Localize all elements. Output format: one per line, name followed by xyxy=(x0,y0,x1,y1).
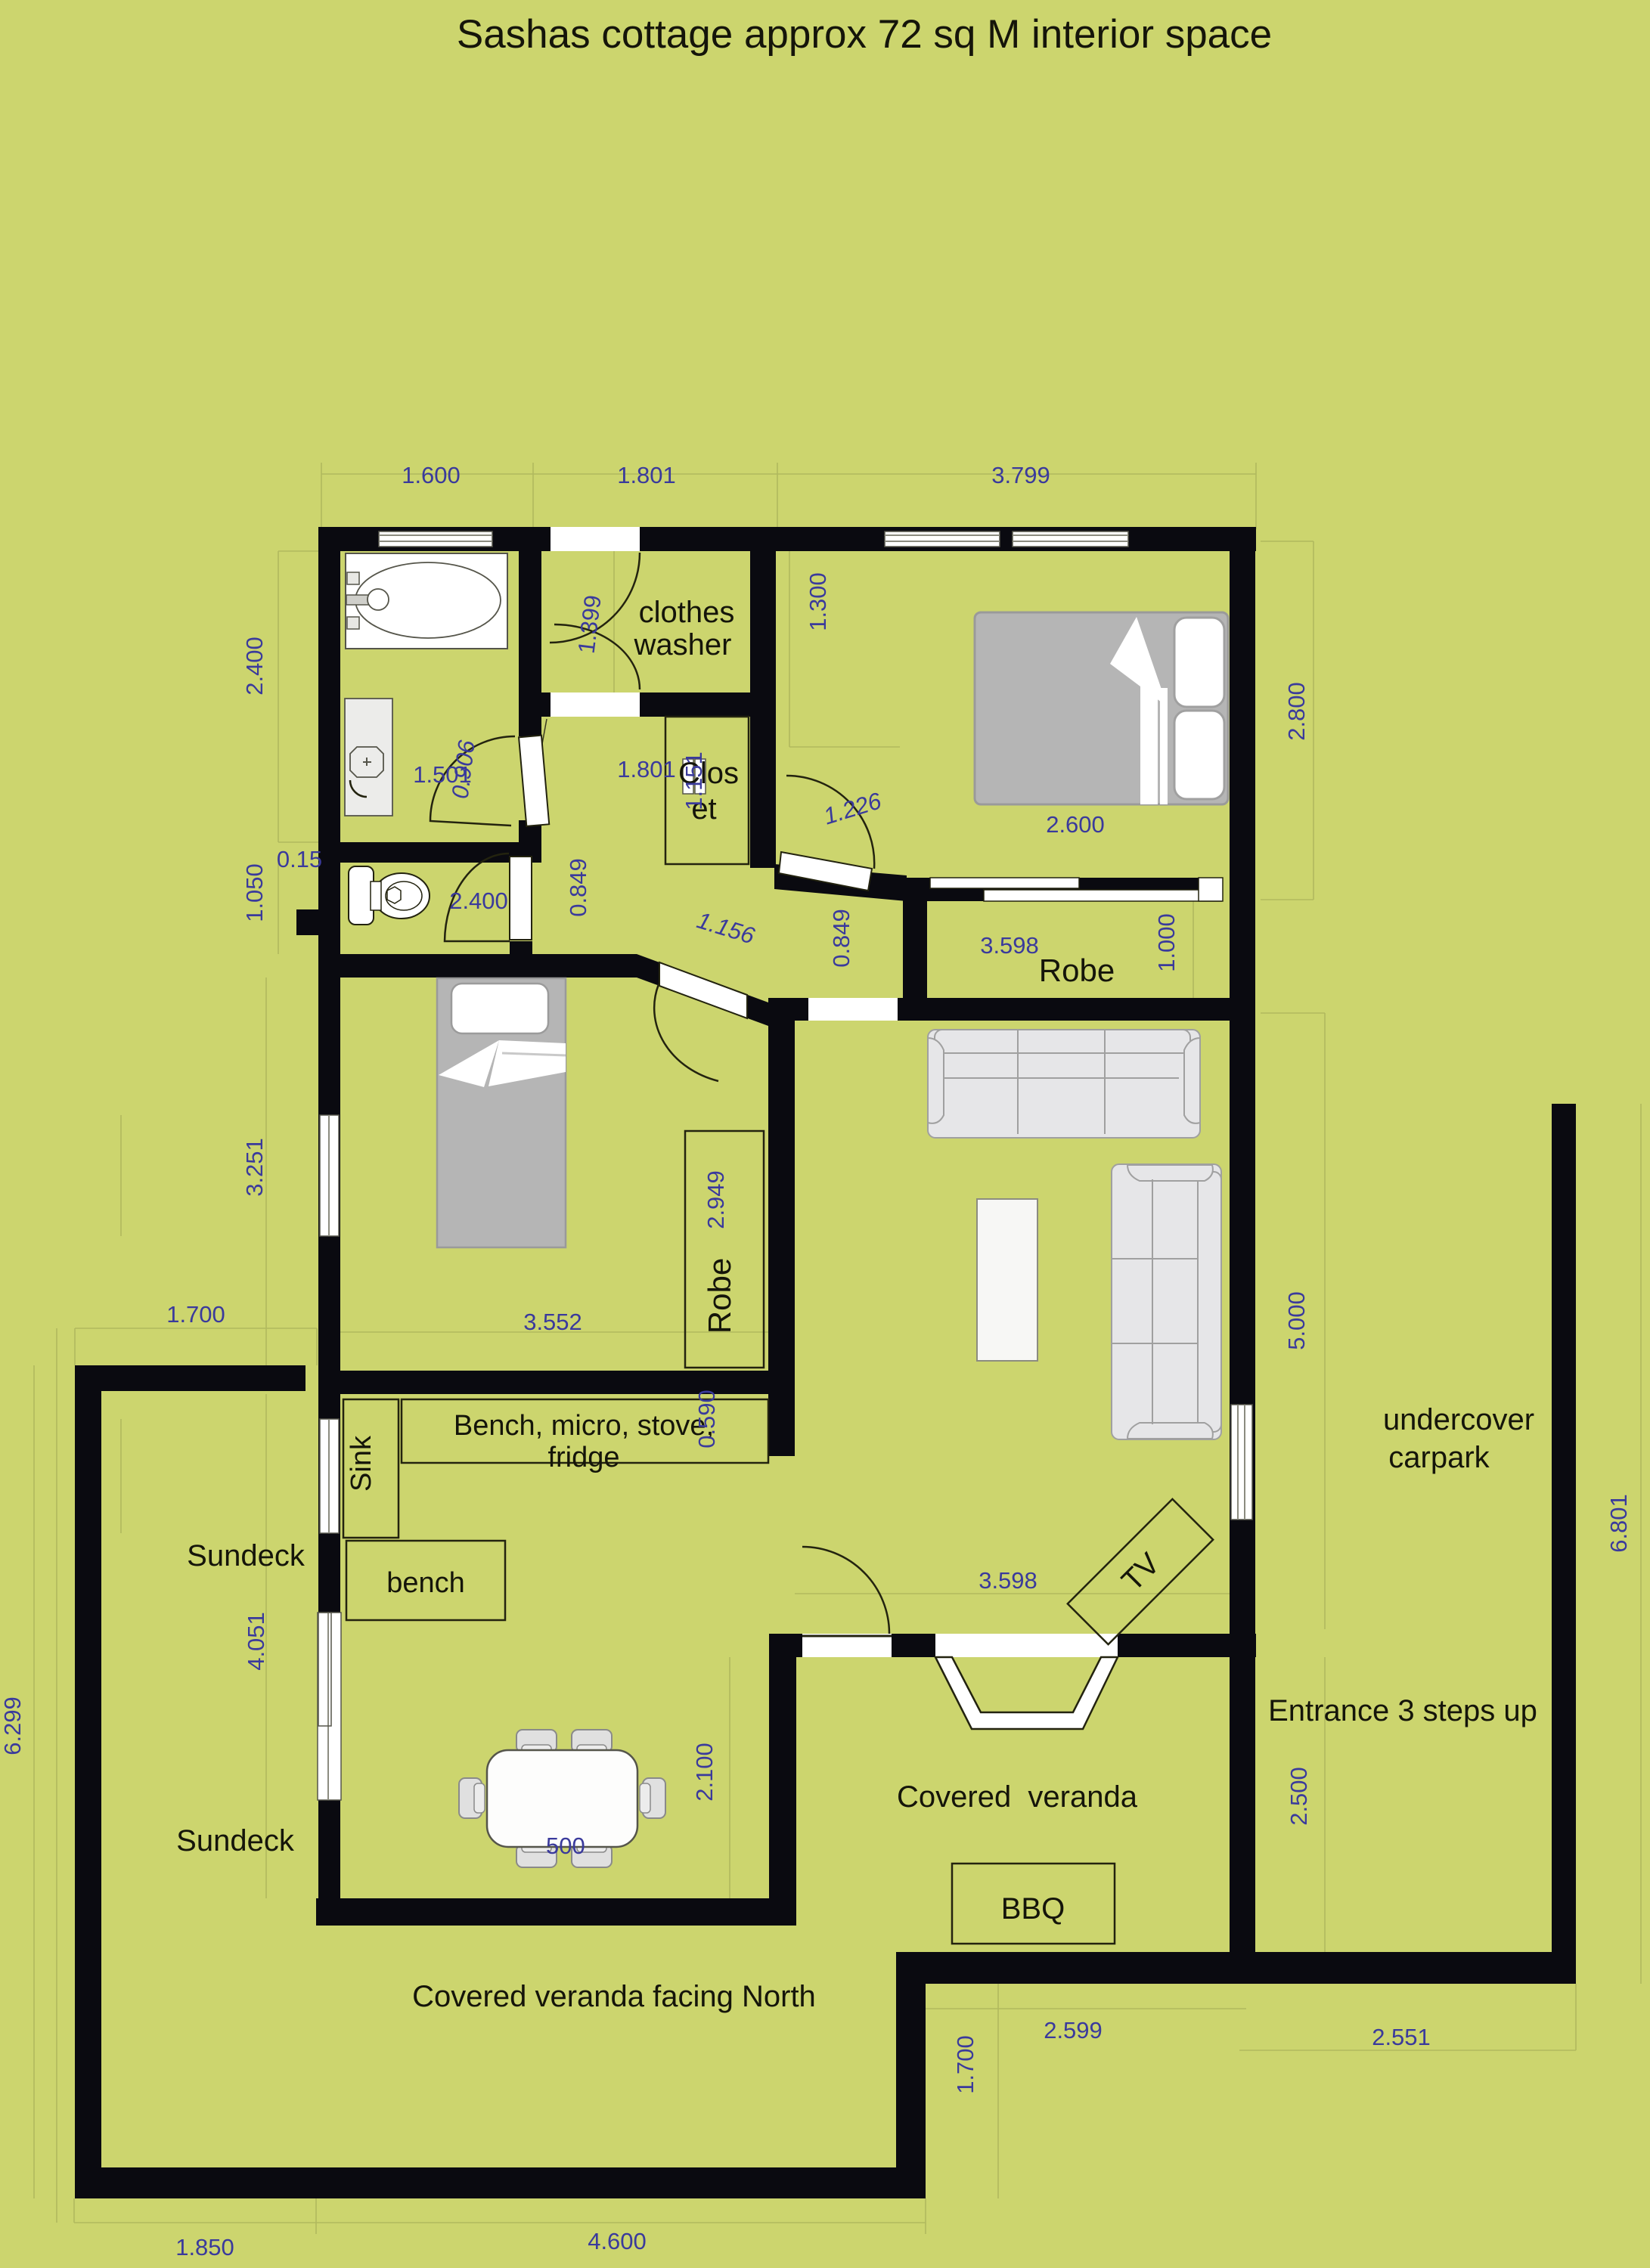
svg-text:3.552: 3.552 xyxy=(523,1309,582,1335)
svg-text:1.801: 1.801 xyxy=(617,462,676,488)
svg-text:2.400: 2.400 xyxy=(241,637,268,696)
svg-text:2.400: 2.400 xyxy=(449,888,508,914)
svg-text:1.700: 1.700 xyxy=(952,2035,979,2094)
svg-text:Entrance 3 steps up: Entrance 3 steps up xyxy=(1268,1694,1537,1727)
svg-text:1.700: 1.700 xyxy=(166,1301,225,1328)
svg-text:1.850: 1.850 xyxy=(175,2234,234,2260)
svg-text:2.599: 2.599 xyxy=(1044,2017,1103,2043)
svg-text:3.598: 3.598 xyxy=(980,932,1039,959)
svg-text:Robe: Robe xyxy=(1039,953,1115,988)
svg-text:2.500: 2.500 xyxy=(1286,1767,1312,1826)
svg-text:1.050: 1.050 xyxy=(241,863,268,922)
svg-text:Sashas cottage approx 72 sq M: Sashas cottage approx 72 sq M interior s… xyxy=(457,12,1272,57)
svg-text:4.600: 4.600 xyxy=(588,2228,647,2254)
svg-text:Covered veranda facing North: Covered veranda facing North xyxy=(412,1980,816,2013)
svg-text:3.799: 3.799 xyxy=(991,462,1050,488)
svg-text:1.600: 1.600 xyxy=(402,462,461,488)
svg-text:1.300: 1.300 xyxy=(805,572,831,631)
svg-text:2.551: 2.551 xyxy=(1372,2024,1431,2050)
svg-text:0.590: 0.590 xyxy=(693,1390,720,1448)
svg-text:clothes: clothes xyxy=(639,596,735,629)
svg-text:6.299: 6.299 xyxy=(0,1696,26,1755)
svg-text:carpark: carpark xyxy=(1388,1441,1490,1474)
svg-text:2.949: 2.949 xyxy=(702,1170,729,1229)
svg-text:2.100: 2.100 xyxy=(691,1743,718,1802)
svg-text:2.600: 2.600 xyxy=(1046,811,1105,838)
svg-text:undercover: undercover xyxy=(1383,1403,1534,1436)
svg-text:3.251: 3.251 xyxy=(241,1138,268,1197)
svg-text:bench: bench xyxy=(386,1567,465,1599)
svg-text:5.000: 5.000 xyxy=(1283,1291,1310,1350)
svg-text:2.800: 2.800 xyxy=(1283,682,1310,741)
svg-text:Sink: Sink xyxy=(346,1435,377,1492)
svg-text:0.849: 0.849 xyxy=(565,858,591,917)
svg-text:Covered veranda: Covered veranda xyxy=(897,1780,1138,1814)
svg-text:4.051: 4.051 xyxy=(243,1612,269,1671)
svg-text:500: 500 xyxy=(546,1833,585,1859)
svg-text:1.801: 1.801 xyxy=(617,756,676,782)
svg-text:0.15: 0.15 xyxy=(277,846,322,872)
svg-text:Sundeck: Sundeck xyxy=(176,1824,295,1857)
svg-text:1.151: 1.151 xyxy=(681,751,707,810)
svg-text:6.801: 6.801 xyxy=(1605,1494,1632,1553)
svg-text:BBQ: BBQ xyxy=(1001,1892,1065,1926)
svg-text:washer: washer xyxy=(634,628,732,661)
svg-text:Sundeck: Sundeck xyxy=(187,1539,305,1572)
svg-text:1.000: 1.000 xyxy=(1153,913,1180,972)
svg-text:Robe: Robe xyxy=(702,1258,737,1334)
svg-text:Bench, micro, stove,: Bench, micro, stove, xyxy=(454,1410,714,1442)
svg-text:3.598: 3.598 xyxy=(979,1567,1037,1594)
svg-text:0.849: 0.849 xyxy=(828,909,854,968)
svg-text:fridge: fridge xyxy=(547,1442,619,1473)
